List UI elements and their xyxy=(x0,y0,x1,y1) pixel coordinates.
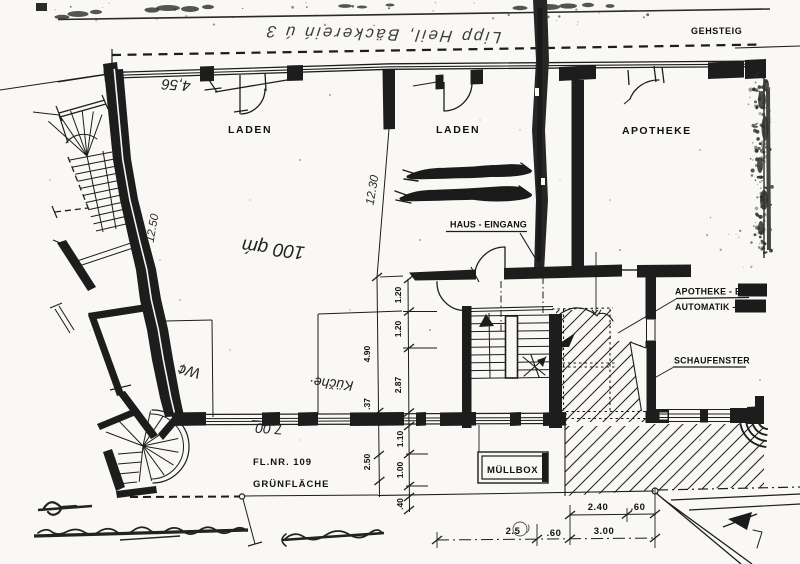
svg-text:GRÜNFLÄCHE: GRÜNFLÄCHE xyxy=(253,479,330,490)
svg-text:3.00: 3.00 xyxy=(594,526,615,537)
svg-text:2.40: 2.40 xyxy=(588,502,609,513)
svg-text:1.00: 1.00 xyxy=(395,461,405,478)
svg-text:LADEN: LADEN xyxy=(436,124,480,136)
svg-text:1.10: 1.10 xyxy=(395,430,405,447)
svg-text:1.20: 1.20 xyxy=(393,320,403,337)
svg-text:HAUS - EINGANG: HAUS - EINGANG xyxy=(450,220,527,230)
svg-text:MÜLLBOX: MÜLLBOX xyxy=(487,465,538,476)
svg-text:.40: .40 xyxy=(395,498,405,510)
svg-text:2.5: 2.5 xyxy=(506,526,521,537)
svg-text:GEHSTEIG: GEHSTEIG xyxy=(691,26,742,36)
svg-text:SCHAUFENSTER: SCHAUFENSTER xyxy=(674,356,750,366)
svg-text:1.20: 1.20 xyxy=(393,286,403,303)
svg-text:): ) xyxy=(526,523,530,533)
svg-text:.60: .60 xyxy=(631,502,646,513)
svg-text:LADEN: LADEN xyxy=(228,124,272,136)
svg-text:2.50: 2.50 xyxy=(362,453,372,470)
svg-text:4.90: 4.90 xyxy=(362,345,372,362)
svg-text:2.87: 2.87 xyxy=(393,376,403,393)
svg-text:.60: .60 xyxy=(547,528,562,539)
svg-text:APOTHEKE: APOTHEKE xyxy=(622,125,692,137)
svg-text:FL.NR. 109: FL.NR. 109 xyxy=(253,457,312,468)
svg-text:4,56: 4,56 xyxy=(160,75,191,94)
svg-text:.37: .37 xyxy=(362,398,372,410)
